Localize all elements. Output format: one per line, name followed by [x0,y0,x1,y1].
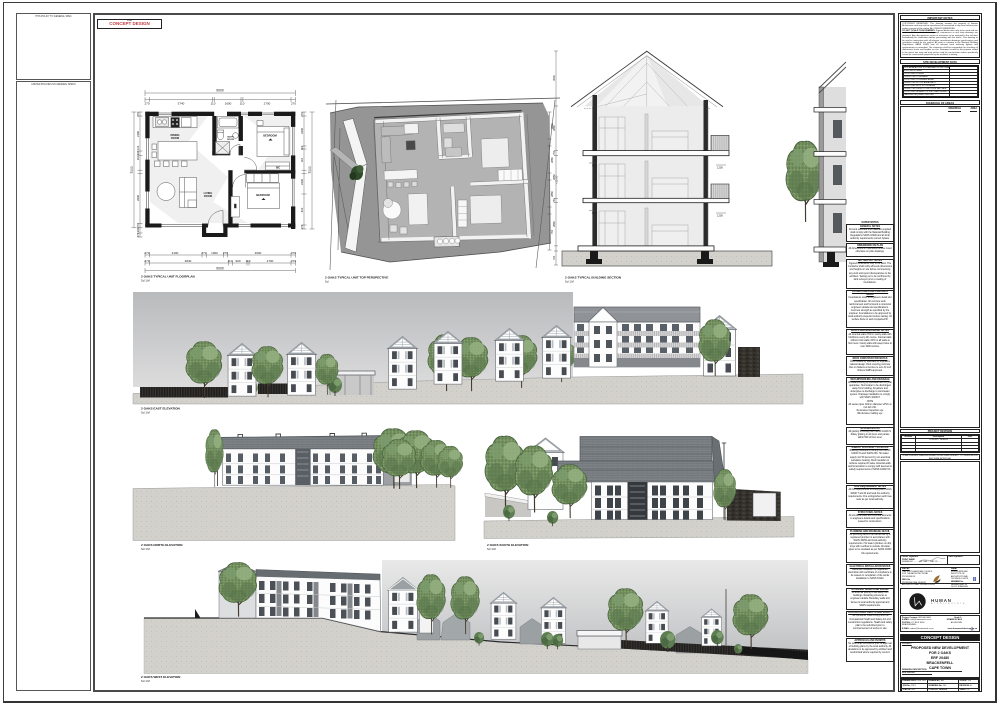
svg-text:2 OAKS TYPICAL UNIT TOP PERSPE: 2 OAKS TYPICAL UNIT TOP PERSPECTIVE [325,276,388,280]
svg-text:2860: 2860 [552,221,556,227]
svg-text:Scl 1:M: Scl 1:M [565,280,574,284]
svg-text:700: 700 [552,255,556,260]
svg-text:2 OAKS EAST ELEVATION: 2 OAKS EAST ELEVATION [141,407,180,411]
svg-text:1200: 1200 [717,214,723,218]
svg-text:2 OAKS NORTH ELEVATION: 2 OAKS NORTH ELEVATION [141,543,183,547]
svg-text:600: 600 [592,211,597,215]
svg-text:Scl 1:M: Scl 1:M [141,411,150,415]
svg-text:Scl 1:M: Scl 1:M [487,547,496,551]
svg-text:2860: 2860 [550,191,554,197]
svg-text:1200: 1200 [717,166,723,170]
svg-text:2 OAKS WEST ELEVATION: 2 OAKS WEST ELEVATION [141,675,181,679]
svg-text:2860: 2860 [552,125,556,131]
svg-text:750: 750 [552,198,556,203]
svg-text:Scl 1:M: Scl 1:M [141,547,150,551]
svg-text:2860: 2860 [550,157,554,163]
svg-text:Scl 1:M: Scl 1:M [141,679,150,683]
svg-text:2860: 2860 [552,174,556,180]
svg-text:600: 600 [592,164,597,168]
svg-text:3540: 3540 [552,75,556,81]
svg-text:750: 750 [550,229,554,234]
svg-text:750: 750 [552,150,556,155]
svg-text:2 OAKS SOUTH ELEVATION: 2 OAKS SOUTH ELEVATION [487,543,529,547]
svg-text:2 OAKS TYPICAL BUILDING SECTIO: 2 OAKS TYPICAL BUILDING SECTION [565,276,622,280]
svg-text:Scl: Scl [325,280,329,284]
